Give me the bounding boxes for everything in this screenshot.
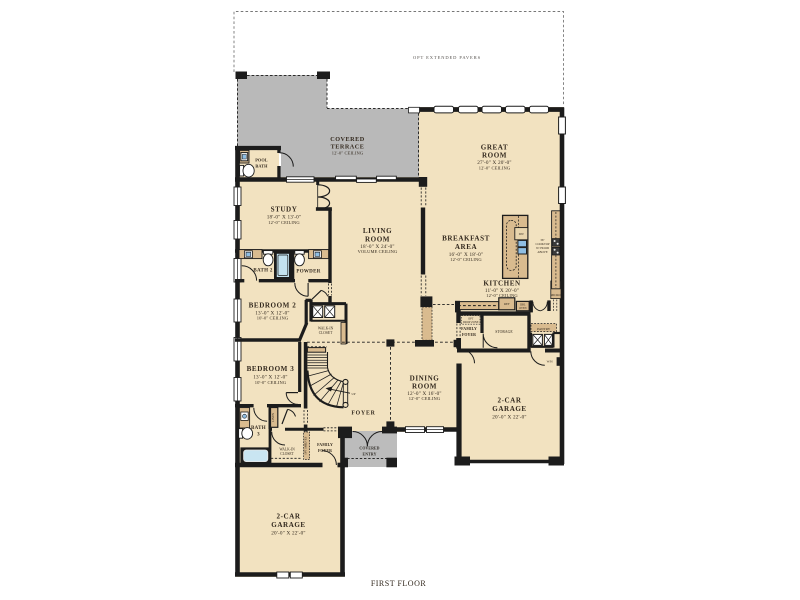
- svg-text:ROOM: ROOM: [482, 151, 507, 159]
- svg-text:CLOSET: CLOSET: [280, 452, 294, 456]
- svg-text:LINEN: LINEN: [271, 412, 275, 422]
- svg-text:12'-0" CEILING: 12'-0" CEILING: [450, 257, 482, 262]
- svg-text:FAMILY: FAMILY: [317, 443, 333, 447]
- svg-text:ENTRY: ENTRY: [363, 452, 377, 456]
- svg-text:AREA: AREA: [455, 243, 478, 251]
- svg-text:12'-0" CEILING: 12'-0" CEILING: [268, 220, 300, 225]
- svg-text:FIRST FLOOR: FIRST FLOOR: [371, 579, 427, 588]
- svg-text:FAMILY: FAMILY: [461, 327, 477, 331]
- svg-text:20'-0" X 22'-0": 20'-0" X 22'-0": [492, 414, 526, 420]
- svg-text:PANTRY: PANTRY: [537, 327, 551, 331]
- svg-text:12'-0" CEILING: 12'-0" CEILING: [479, 166, 511, 171]
- svg-text:DINING: DINING: [410, 375, 440, 383]
- svg-text:STUDY: STUDY: [271, 205, 298, 213]
- svg-text:2-CAR: 2-CAR: [497, 397, 521, 405]
- svg-text:3: 3: [257, 432, 260, 437]
- svg-text:GREAT: GREAT: [481, 143, 508, 151]
- svg-text:POOL: POOL: [255, 158, 268, 163]
- svg-text:FOYER: FOYER: [462, 333, 476, 337]
- svg-text:CLOSET: CLOSET: [319, 331, 333, 335]
- svg-text:VOLUME CEILING: VOLUME CEILING: [358, 249, 398, 254]
- svg-text:DW: DW: [519, 232, 524, 236]
- svg-text:ROOM: ROOM: [365, 235, 390, 243]
- svg-text:BATH 2: BATH 2: [253, 268, 273, 273]
- svg-text:10'-0" CEILING: 10'-0" CEILING: [255, 380, 287, 385]
- svg-text:12'-0" CEILING: 12'-0" CEILING: [332, 151, 364, 156]
- svg-text:COVERED: COVERED: [359, 447, 379, 451]
- svg-text:BATH: BATH: [251, 426, 266, 431]
- svg-text:WALK-IN: WALK-IN: [318, 327, 334, 331]
- svg-text:LIVING: LIVING: [363, 227, 392, 235]
- svg-text:ABOVE: ABOVE: [537, 250, 548, 254]
- svg-text:BATH: BATH: [255, 164, 268, 169]
- svg-text:W/H: W/H: [547, 360, 554, 364]
- svg-text:TERRACE: TERRACE: [331, 144, 365, 151]
- svg-text:UP: UP: [352, 392, 356, 396]
- svg-text:BREAKFAST: BREAKFAST: [442, 234, 490, 242]
- svg-text:12'-0" CEILING: 12'-0" CEILING: [486, 293, 518, 298]
- svg-text:OVEN: OVEN: [519, 307, 527, 310]
- svg-text:FOYER: FOYER: [351, 410, 375, 416]
- svg-text:FOYER: FOYER: [318, 449, 332, 453]
- svg-text:COVERED: COVERED: [330, 136, 364, 143]
- svg-text:REF: REF: [504, 302, 510, 306]
- svg-text:WALK-IN: WALK-IN: [279, 448, 295, 452]
- svg-text:GARAGE: GARAGE: [492, 405, 526, 413]
- svg-text:ROOM: ROOM: [412, 383, 437, 391]
- svg-text:12'-0" CEILING: 12'-0" CEILING: [409, 396, 441, 401]
- svg-text:20'-0" X 22'-0": 20'-0" X 22'-0": [271, 530, 305, 536]
- svg-text:BEDROOM 3: BEDROOM 3: [247, 365, 295, 373]
- svg-text:POWDER: POWDER: [296, 269, 320, 274]
- svg-text:MICRO: MICRO: [551, 293, 562, 297]
- svg-text:OPT EXTENDED PAVERS: OPT EXTENDED PAVERS: [413, 55, 481, 60]
- svg-text:STORAGE: STORAGE: [495, 330, 513, 334]
- svg-text:OPT SHELVES: OPT SHELVES: [305, 436, 308, 454]
- svg-text:10'-0" CEILING: 10'-0" CEILING: [257, 316, 289, 321]
- svg-text:DROP ZONE: DROP ZONE: [463, 321, 479, 324]
- svg-text:BEDROOM 2: BEDROOM 2: [249, 302, 297, 310]
- svg-text:GARAGE: GARAGE: [271, 521, 305, 529]
- svg-text:KITCHEN: KITCHEN: [483, 279, 521, 287]
- svg-text:2-CAR: 2-CAR: [276, 513, 300, 521]
